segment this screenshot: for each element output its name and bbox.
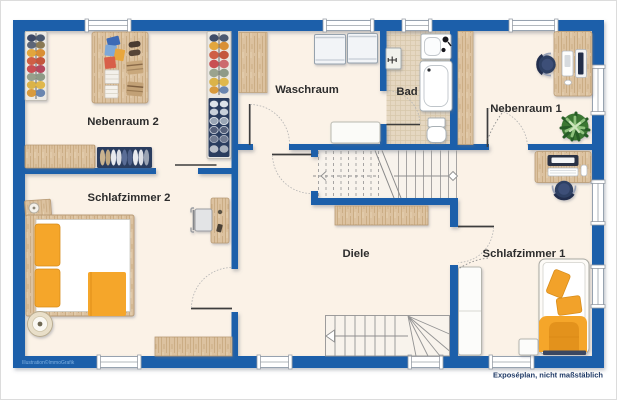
svg-text:Schlafzimmer 1: Schlafzimmer 1 xyxy=(483,248,566,260)
svg-text:Illustration©ImmoGrafik: Illustration©ImmoGrafik xyxy=(22,359,75,366)
svg-text:Schlafzimmer 2: Schlafzimmer 2 xyxy=(88,192,171,204)
svg-text:Diele: Diele xyxy=(342,248,369,260)
svg-text:Waschraum: Waschraum xyxy=(275,84,339,96)
svg-text:Nebenraum 1: Nebenraum 1 xyxy=(490,103,562,115)
svg-text:Exposéplan, nicht maßstäblich: Exposéplan, nicht maßstäblich xyxy=(493,371,603,380)
svg-text:Bad: Bad xyxy=(396,86,417,98)
svg-text:Nebenraum 2: Nebenraum 2 xyxy=(87,116,159,128)
